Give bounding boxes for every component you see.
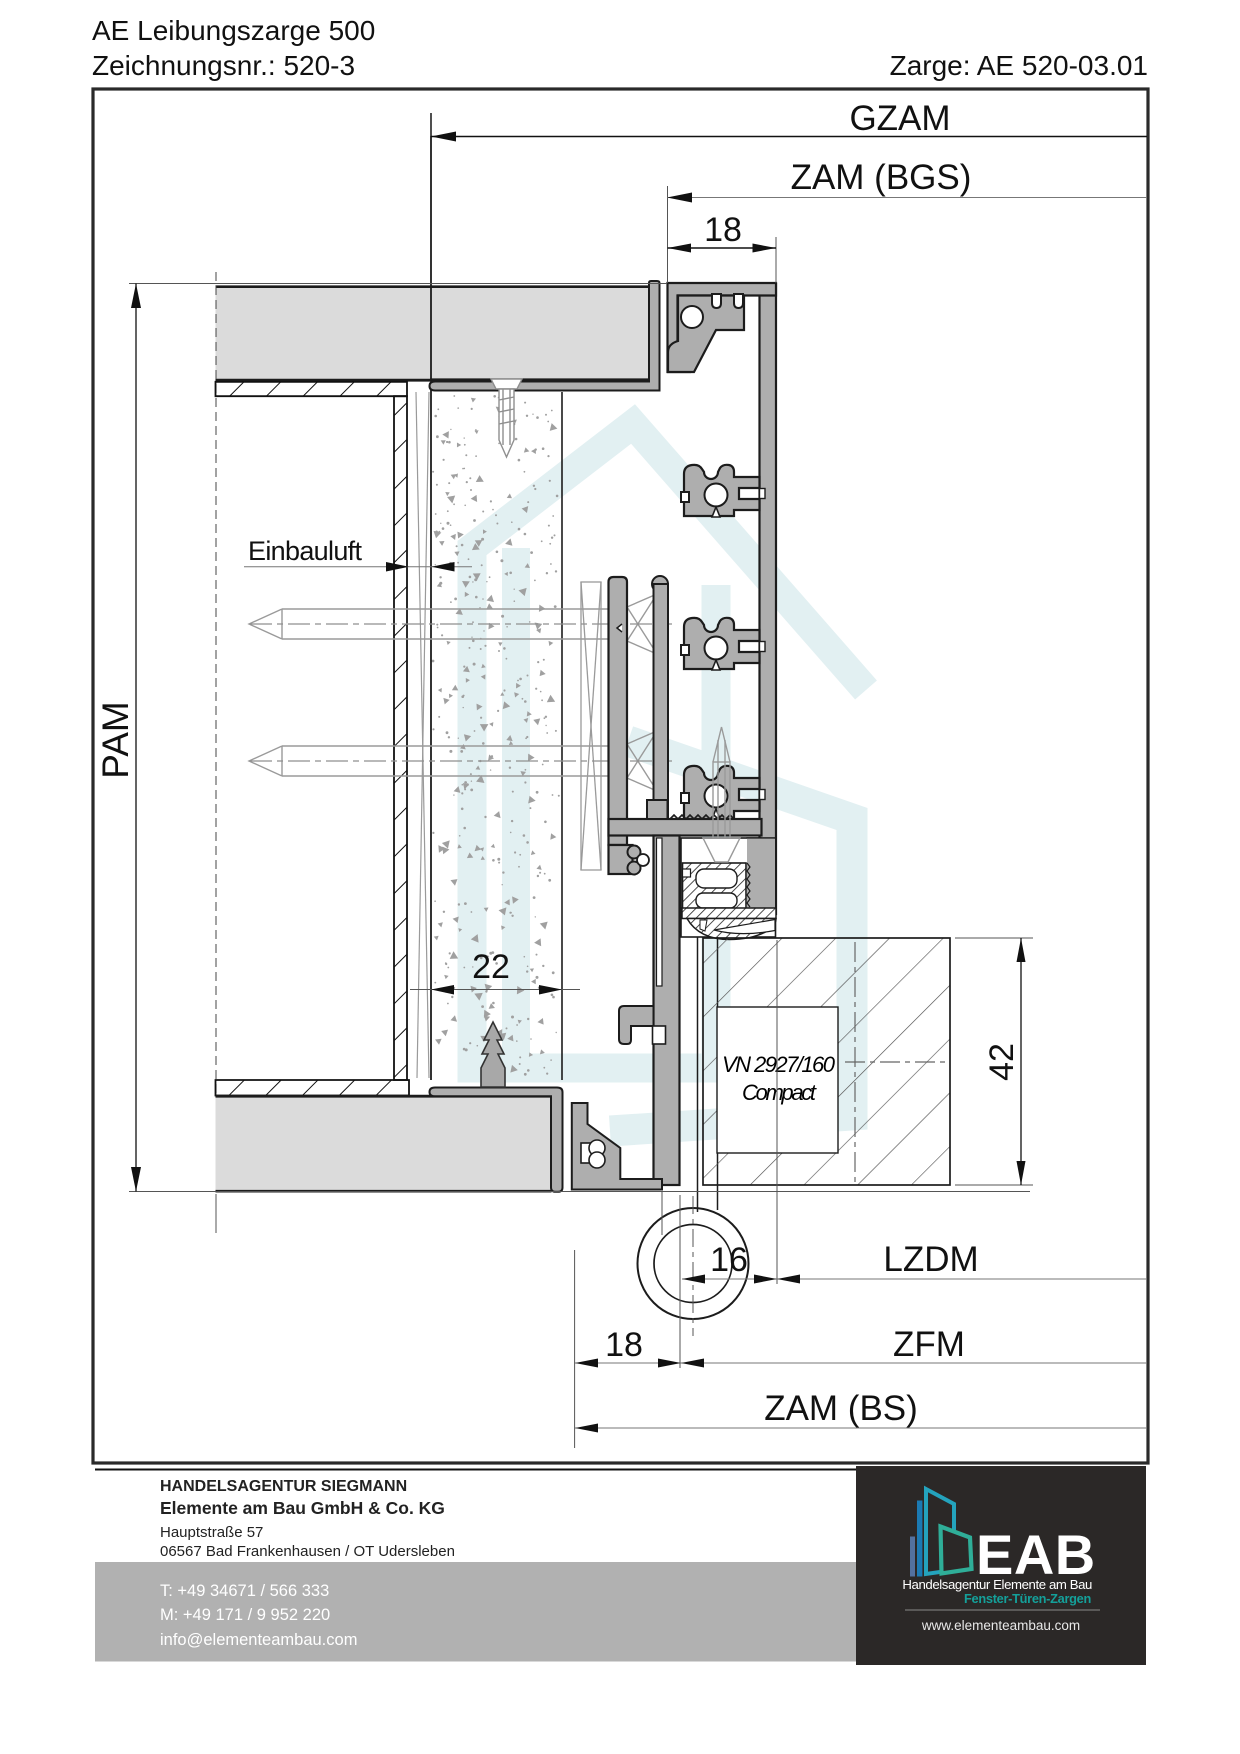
svg-text:M: +49 171 / 9 952 220: M: +49 171 / 9 952 220	[160, 1606, 330, 1624]
svg-text:06567 Bad Frankenhausen / OT U: 06567 Bad Frankenhausen / OT Udersleben	[160, 1543, 455, 1560]
svg-text:ZAM (BGS): ZAM (BGS)	[791, 158, 972, 197]
svg-text:18: 18	[704, 211, 742, 249]
svg-text:ZFM: ZFM	[893, 1325, 965, 1364]
svg-text:42: 42	[983, 1043, 1021, 1081]
svg-text:info@elementeambau.com: info@elementeambau.com	[160, 1631, 357, 1649]
svg-text:ZAM (BS): ZAM (BS)	[764, 1389, 918, 1428]
svg-text:AE Leibungszarge 500: AE Leibungszarge 500	[92, 15, 375, 46]
svg-text:18: 18	[605, 1326, 643, 1364]
svg-text:16: 16	[710, 1241, 748, 1279]
svg-text:Elemente am Bau GmbH & Co. KG: Elemente am Bau GmbH & Co. KG	[160, 1498, 445, 1518]
svg-text:Zeichnungsnr.: 520-3: Zeichnungsnr.: 520-3	[92, 50, 355, 81]
svg-text:HANDELSAGENTUR SIEGMANN: HANDELSAGENTUR SIEGMANN	[160, 1478, 407, 1495]
svg-text:Fenster-Türen-Zargen: Fenster-Türen-Zargen	[964, 1591, 1091, 1606]
svg-text:Hauptstraße 57: Hauptstraße 57	[160, 1524, 263, 1541]
svg-text:GZAM: GZAM	[849, 99, 950, 138]
svg-text:Zarge: AE 520-03.01: Zarge: AE 520-03.01	[890, 50, 1148, 81]
svg-text:www.elementeambau.com: www.elementeambau.com	[921, 1618, 1080, 1633]
svg-text:Compact: Compact	[742, 1080, 817, 1105]
svg-text:22: 22	[472, 948, 510, 986]
svg-text:Einbauluft: Einbauluft	[248, 536, 362, 566]
svg-text:T: +49 34671 / 566 333: T: +49 34671 / 566 333	[160, 1582, 329, 1600]
svg-text:PAM: PAM	[95, 701, 136, 778]
svg-text:VN 2927/160: VN 2927/160	[722, 1052, 836, 1077]
svg-text:Handelsagentur Elemente am Bau: Handelsagentur Elemente am Bau	[902, 1577, 1092, 1592]
svg-text:LZDM: LZDM	[883, 1240, 978, 1279]
